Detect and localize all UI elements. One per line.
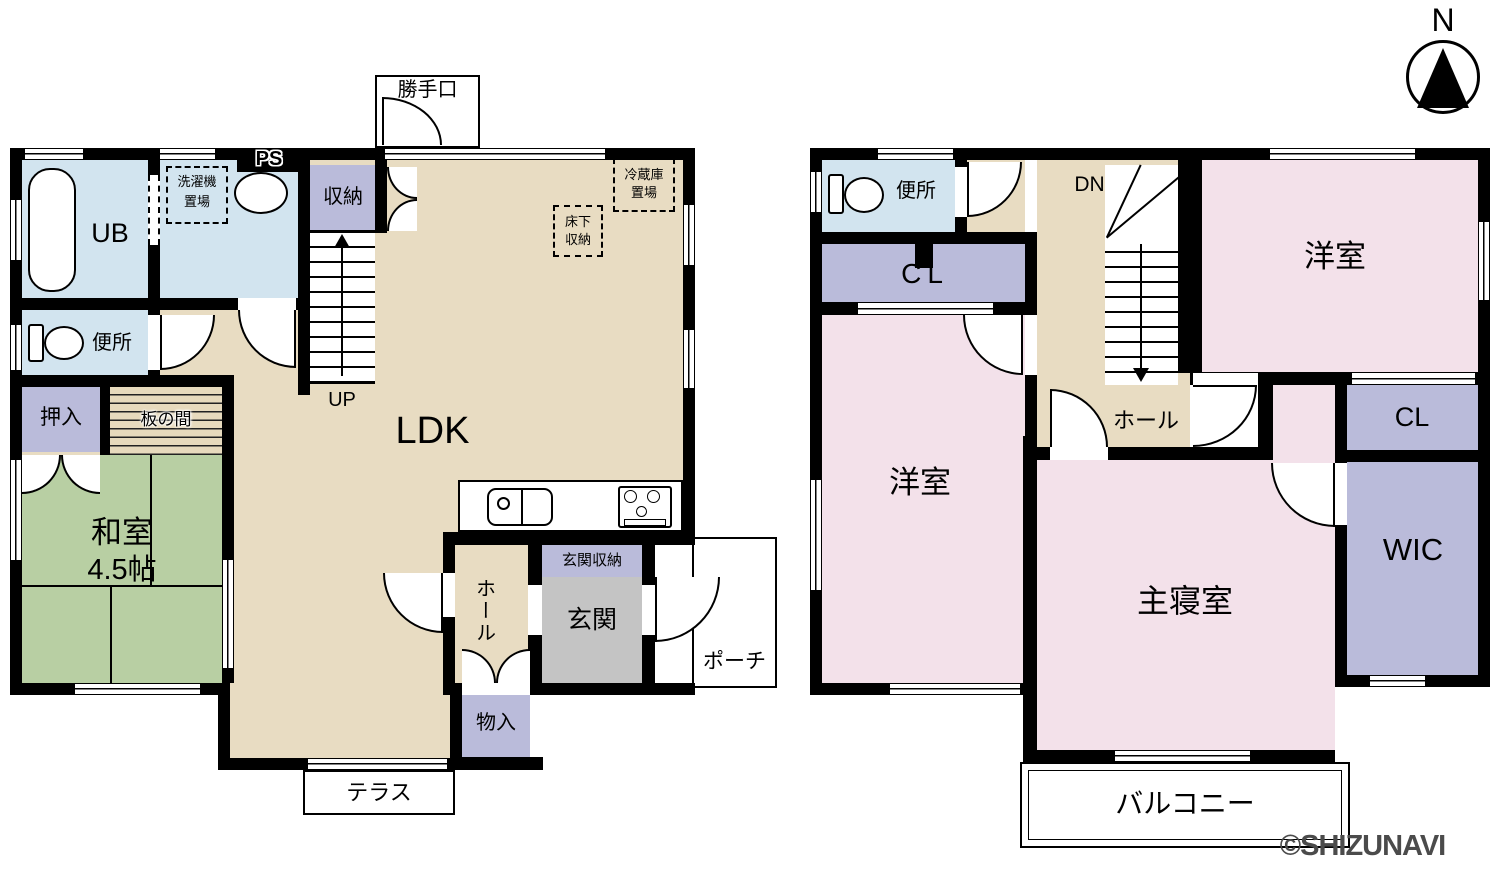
wall: [1023, 447, 1050, 460]
window: [75, 683, 200, 695]
window: [810, 480, 822, 590]
room-label-wic: WIC: [1368, 530, 1458, 570]
floorplan-canvas: 勝手口 PS 収納 洗濯機 置場 UB 便所 押入 板の間 和室 4.5帖 LD…: [0, 0, 1500, 874]
wall: [1258, 373, 1273, 460]
door-opening: [238, 298, 296, 310]
room-label-katteguchi: 勝手口: [377, 78, 478, 102]
stairs-label-dn: DN: [1062, 172, 1117, 198]
watermark: ©SHIZUNAVI: [1250, 828, 1475, 864]
door-opening: [955, 167, 967, 217]
fridge-label-line2: 置場: [615, 184, 673, 202]
wall: [1335, 450, 1490, 462]
window: [1270, 148, 1415, 160]
window: [810, 172, 822, 212]
window: [890, 683, 1020, 695]
stove-grill: [624, 519, 666, 526]
folding-door: [148, 175, 160, 245]
room-label-washitsu-size: 4.5帖: [42, 553, 202, 587]
stove-burner-icon: [647, 490, 660, 503]
bathtub-icon: [28, 168, 76, 292]
balcony-sliding-door: [1115, 750, 1250, 762]
room-label-genkan: 玄関: [552, 602, 632, 638]
window: [1370, 675, 1425, 687]
room-label-hall-1f: ホール: [468, 552, 498, 670]
wall: [1023, 436, 1037, 762]
room-label-yoshitsu-left: 洋室: [868, 462, 972, 504]
toilet-tank-icon: [28, 324, 44, 362]
wall: [100, 387, 110, 455]
room-label-itanoma: 板の間: [112, 400, 220, 440]
wall: [810, 232, 1030, 244]
sink-divider: [521, 490, 523, 524]
wall: [528, 683, 695, 695]
door-arc: [1193, 385, 1257, 447]
room-label-ps: PS: [240, 146, 298, 172]
door-opening: [1335, 463, 1347, 525]
door-opening: [1193, 373, 1258, 385]
wall: [1178, 148, 1202, 373]
wall: [10, 375, 230, 387]
wall: [1335, 384, 1347, 675]
room-label-ldk: LDK: [385, 408, 480, 456]
stairs-up-arrow: [334, 234, 350, 248]
stairs-center-line: [1140, 244, 1142, 370]
window: [25, 148, 83, 160]
door-opening: [642, 585, 655, 635]
door-opening: [443, 573, 455, 617]
room-label-yoshitsu-right: 洋室: [1283, 236, 1387, 278]
window: [10, 460, 22, 560]
compass-needle-icon: [1417, 48, 1469, 108]
stairs-center-line: [341, 240, 343, 376]
room-label-benjo-1f: 便所: [76, 328, 148, 358]
wall: [1108, 447, 1258, 460]
door-opening: [1025, 315, 1037, 375]
terrace-sliding-door: [308, 758, 447, 770]
window: [683, 205, 695, 265]
toilet-bowl-icon: [844, 177, 884, 213]
room-label-genkan-shuno: 玄関収納: [542, 548, 642, 574]
wall: [298, 160, 310, 395]
window: [683, 330, 695, 388]
compass-north-label: N: [1423, 4, 1463, 38]
toilet-tank-icon: [828, 174, 844, 214]
room-label-cl-right: CL: [1380, 398, 1444, 436]
room-label-shuno-1f: 収納: [312, 182, 374, 212]
stairs-label-up: UP: [312, 387, 372, 413]
underfloor-label-line1: 床下: [555, 213, 601, 231]
sliding-door: [222, 560, 234, 668]
room-label-porch: ポーチ: [692, 648, 777, 676]
wall: [310, 381, 375, 384]
stove-burner-icon: [636, 506, 647, 517]
laundry-label-line2: 置場: [168, 192, 226, 212]
tatami-line: [110, 587, 112, 683]
wall: [450, 757, 543, 770]
wall: [443, 532, 695, 545]
wall: [810, 148, 822, 695]
window: [10, 325, 22, 370]
wall: [375, 160, 387, 233]
window: [1478, 222, 1490, 300]
underfloor-label-line2: 収納: [555, 231, 601, 249]
ldk-floor-bottom: [230, 683, 455, 758]
faucet-icon: [497, 497, 510, 510]
room-label-cl-left: CL: [888, 252, 962, 296]
window: [878, 148, 953, 160]
window: [160, 148, 215, 160]
window: [465, 148, 605, 160]
stove-burner-icon: [624, 490, 637, 503]
door-opening: [148, 315, 160, 370]
room-label-oshiire: 押入: [24, 398, 98, 438]
window: [10, 200, 22, 260]
wall: [443, 545, 455, 690]
room-label-benjo-2f: 便所: [880, 176, 952, 206]
room-label-monoire: 物入: [464, 706, 528, 740]
wall: [218, 683, 230, 770]
room-master-nook: [1273, 385, 1335, 460]
door-opening: [528, 585, 542, 635]
room-label-master: 主寝室: [1105, 582, 1265, 622]
door-opening: [385, 148, 465, 160]
washbasin-icon: [234, 172, 288, 214]
kitchen-sink-icon: [487, 488, 553, 526]
sliding-door: [858, 302, 993, 315]
wall: [530, 683, 543, 695]
room-label-hall-2f: ホール: [1100, 406, 1192, 436]
sliding-door: [1352, 372, 1475, 385]
room-label-balcony: バルコニー: [1075, 786, 1295, 822]
wall: [443, 683, 462, 695]
stairs-down-arrow: [1133, 368, 1149, 382]
room-label-ub: UB: [80, 216, 140, 250]
door-opening: [462, 683, 530, 695]
room-label-washitsu: 和室: [42, 515, 202, 551]
fridge-label-line1: 冷蔵庫: [615, 166, 673, 184]
room-label-terrace: テラス: [312, 779, 446, 807]
laundry-label-line1: 洗濯機: [168, 172, 226, 192]
door-opening: [1050, 447, 1108, 460]
